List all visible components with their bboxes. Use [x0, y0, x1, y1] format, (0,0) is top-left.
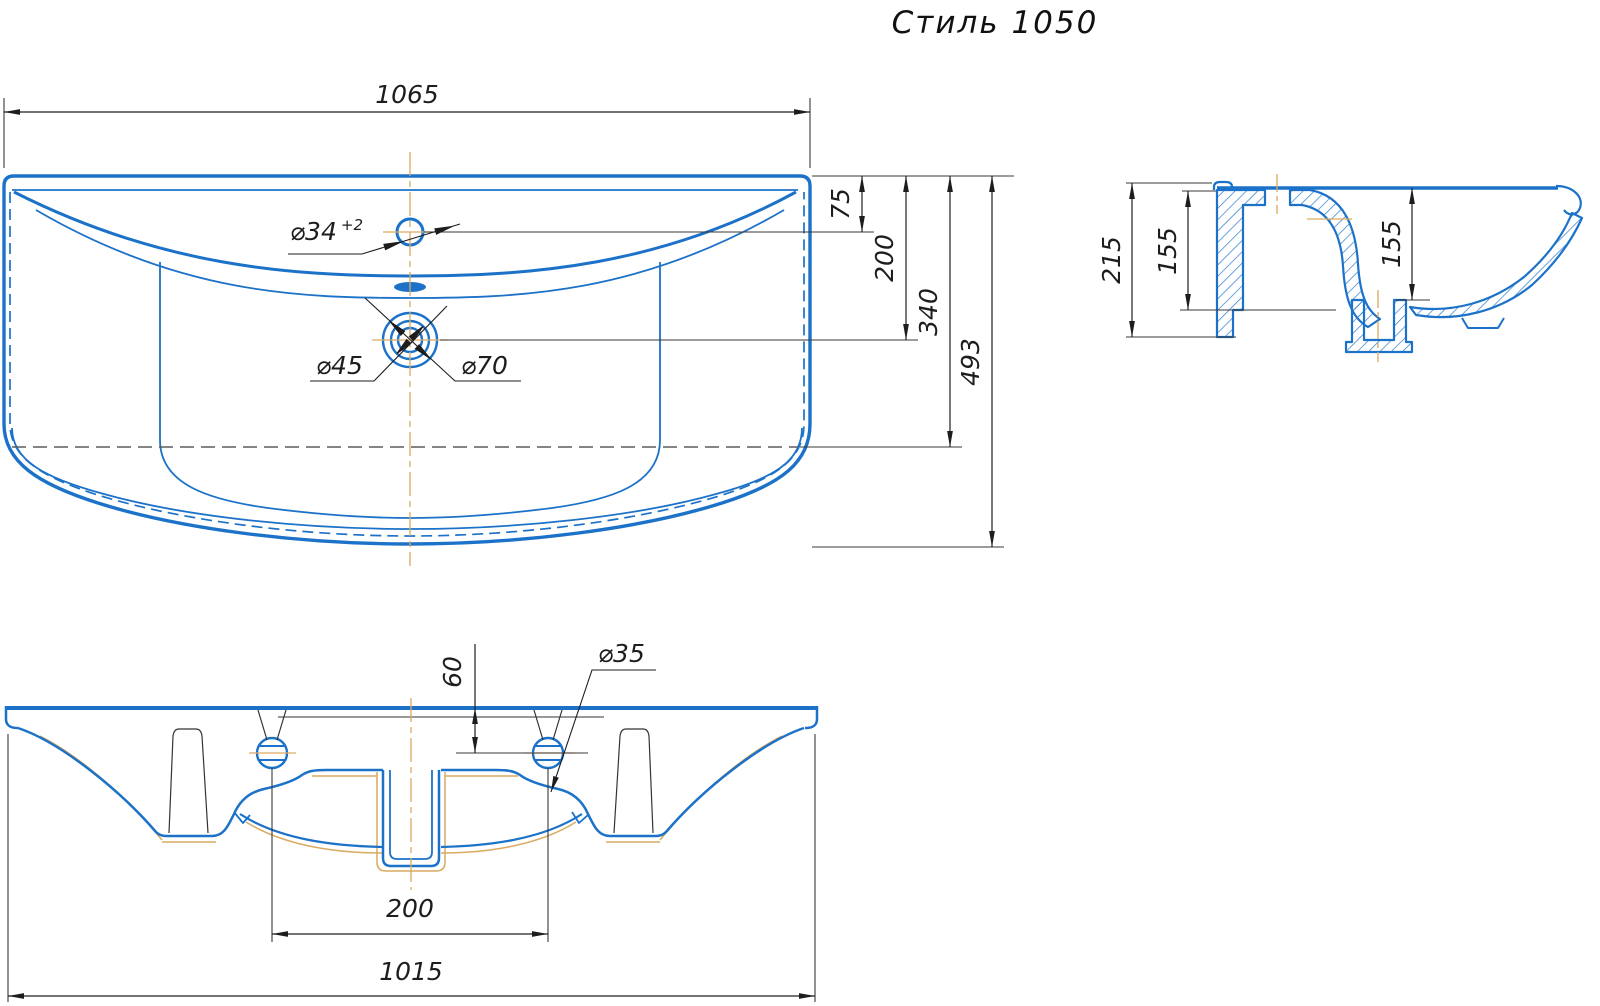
dim-label-155-left: 155 — [1153, 227, 1182, 275]
section-back-wall — [1217, 190, 1265, 337]
front-centerlines — [249, 698, 575, 890]
dim-label-75: 75 — [826, 188, 855, 220]
dim-label-215: 215 — [1097, 236, 1126, 284]
dim-label-155-right: 155 — [1377, 220, 1406, 268]
front-profile-right — [441, 728, 804, 836]
dim-label-340: 340 — [914, 288, 943, 336]
countersink-left — [258, 710, 286, 740]
rib-left — [169, 729, 208, 833]
section-drain-trap — [1346, 300, 1412, 352]
section-front-wall — [1410, 213, 1582, 317]
section-front-rim-curl — [1556, 186, 1581, 214]
countersink-right — [534, 710, 562, 740]
label-drain-outer-dia: ⌀70 — [461, 351, 508, 380]
technical-drawing: Стиль 1050 — [0, 0, 1600, 1006]
plan-dimensions — [4, 98, 1014, 547]
dim-label-overall-width: 1065 — [375, 80, 439, 109]
rib-right — [614, 729, 653, 833]
front-kink-left — [234, 812, 250, 823]
label-drain-inner-dia: ⌀45 — [316, 351, 363, 380]
dim-label-60: 60 — [438, 656, 467, 688]
front-profile-left — [18, 728, 383, 836]
dim-label-493: 493 — [956, 338, 985, 386]
section-front-step — [1462, 318, 1504, 328]
dim-label-200-front: 200 — [386, 894, 434, 923]
drawing-canvas: Стиль 1050 — [0, 0, 1600, 1006]
dim-label-200: 200 — [870, 234, 899, 282]
plan-view — [4, 176, 810, 544]
plan-outer-edge — [4, 176, 810, 544]
leader-mount-hole — [551, 670, 656, 792]
plan-basin-back-curve — [14, 192, 796, 276]
front-view — [5, 698, 818, 890]
drawing-title: Стиль 1050 — [892, 5, 1099, 41]
dim-label-1015: 1015 — [379, 957, 443, 986]
label-mount-hole-dia: ⌀35 — [598, 639, 645, 668]
section-rim-and-channel — [1290, 190, 1380, 327]
label-faucet-dia: ⌀34+2 — [290, 216, 363, 246]
